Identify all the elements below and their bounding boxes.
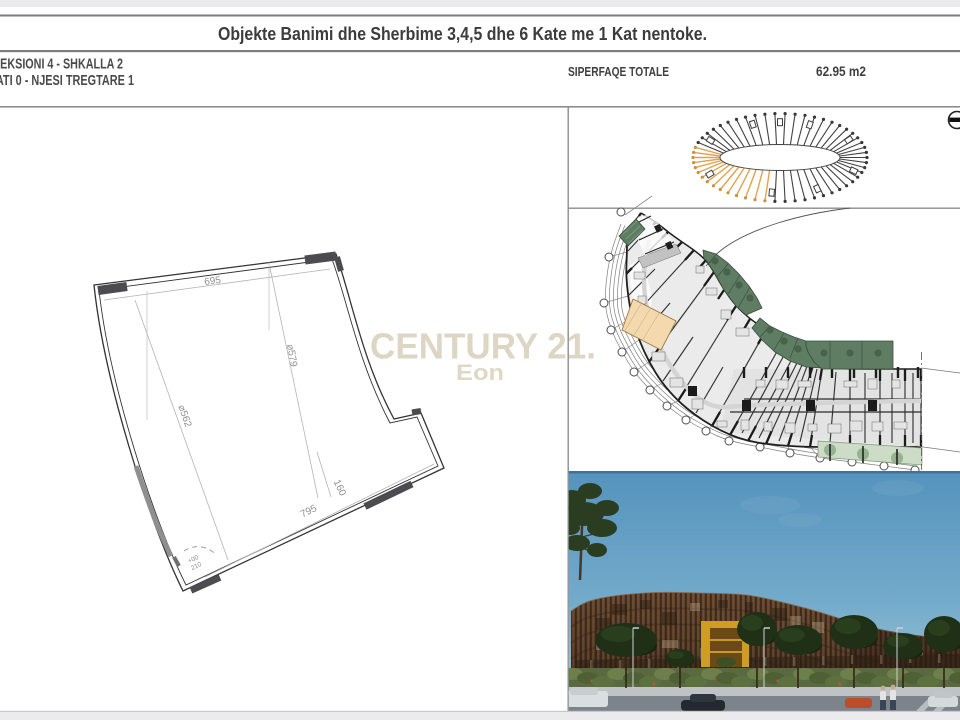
svg-text:62.95 m2: 62.95 m2 (816, 64, 866, 79)
svg-text:Eon: Eon (456, 360, 504, 385)
svg-text:SIPERFAQE TOTALE: SIPERFAQE TOTALE (568, 64, 669, 79)
svg-text:Objekte Banimi dhe Sherbime 3,: Objekte Banimi dhe Sherbime 3,4,5 dhe 6 … (218, 24, 707, 44)
svg-text:KATI 0 - NJESI TREGTARE 1: KATI 0 - NJESI TREGTARE 1 (0, 72, 134, 89)
svg-text:SEKSIONI 4 - SHKALLA 2: SEKSIONI 4 - SHKALLA 2 (0, 56, 123, 73)
